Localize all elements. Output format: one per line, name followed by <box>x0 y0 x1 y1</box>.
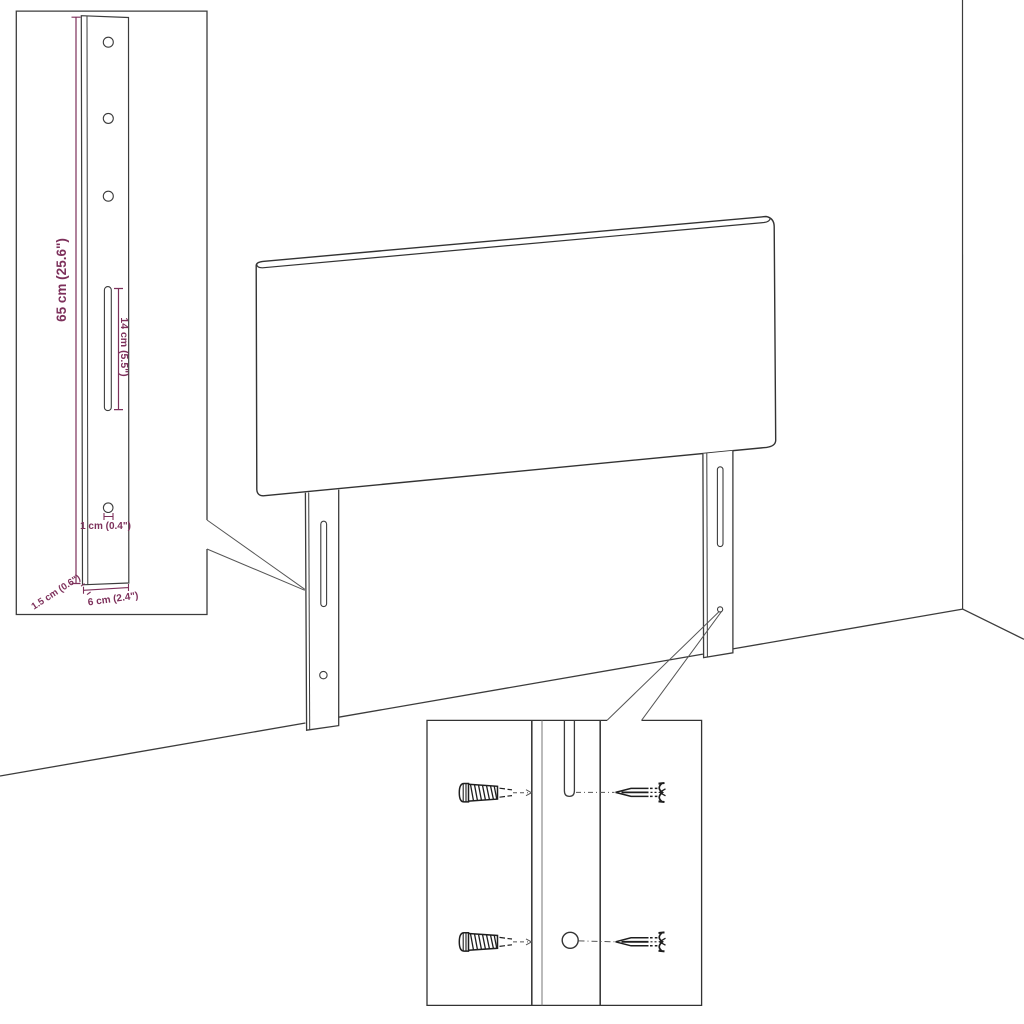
svg-text:1 cm (0.4"): 1 cm (0.4") <box>80 521 131 532</box>
svg-text:14 cm (5.5"): 14 cm (5.5") <box>118 317 130 376</box>
svg-text:65 cm (25.6"): 65 cm (25.6") <box>54 238 69 322</box>
